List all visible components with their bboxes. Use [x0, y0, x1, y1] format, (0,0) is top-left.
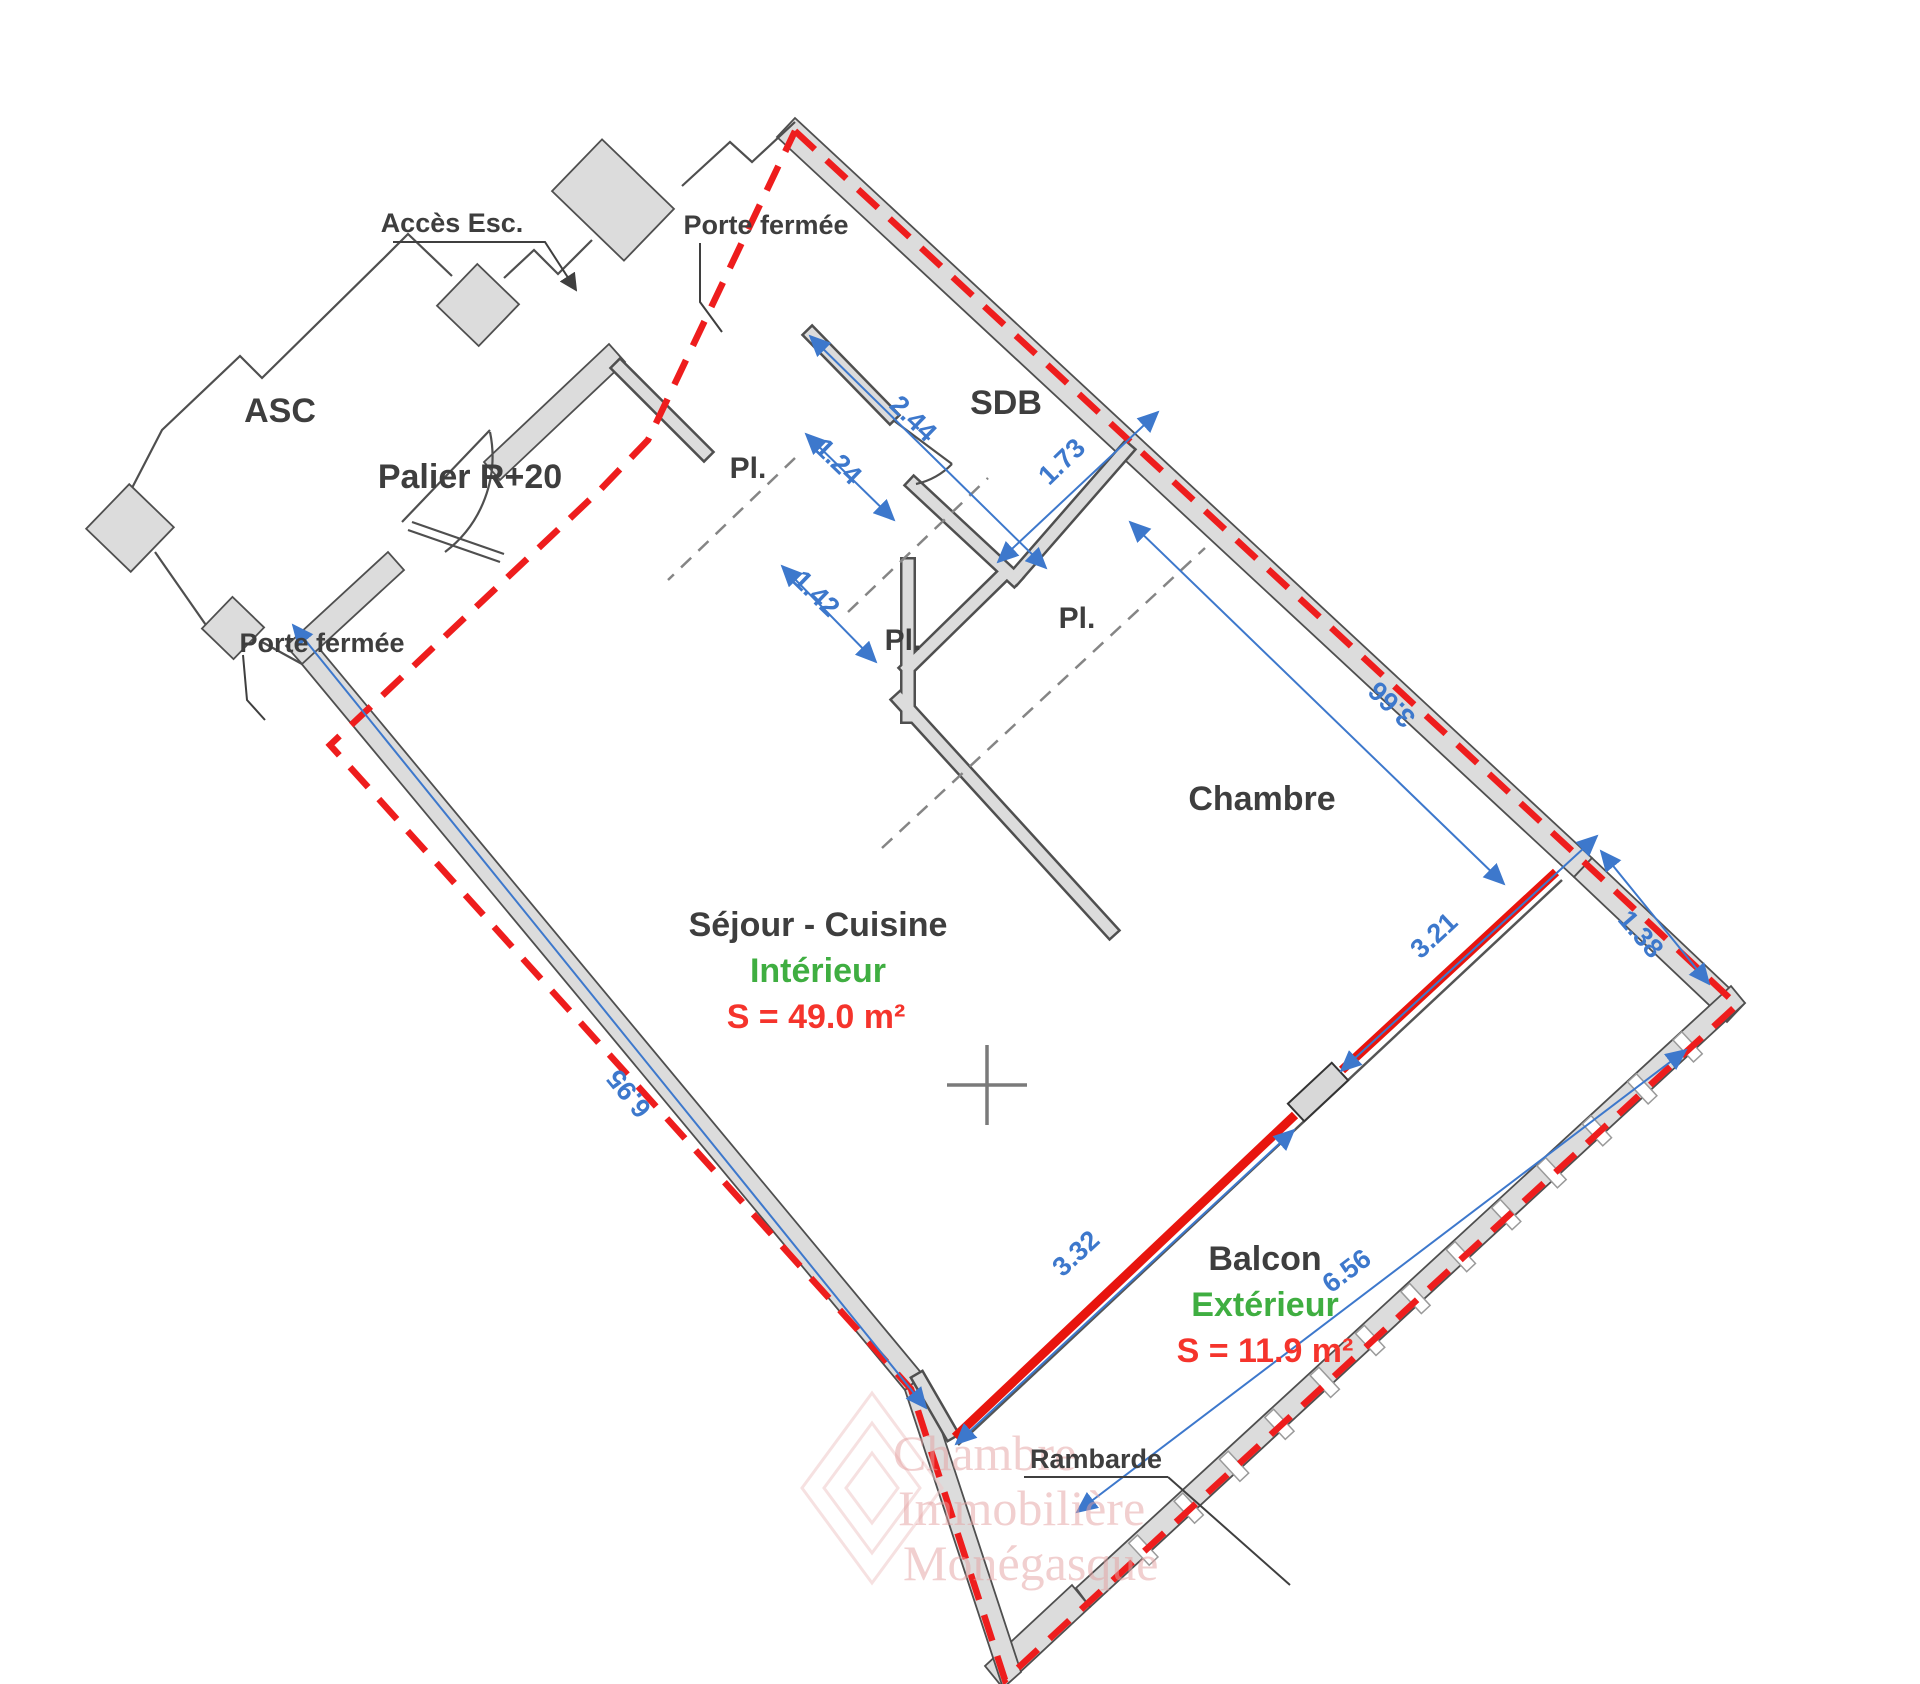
watermark-line3: Monégasque	[903, 1535, 1159, 1591]
dim-hall-width: 1.42	[787, 564, 846, 622]
floor-plan-drawing: 2.44 1.24 1.42 1.73 3.66 6.95 3.32 3.21 …	[0, 0, 1920, 1684]
label-closet-bedroom: Pl.	[1059, 602, 1096, 635]
label-interior-zone: Intérieur	[750, 952, 886, 990]
label-closet-entry: Pl.	[730, 452, 767, 485]
dim-glazing-upper: 3.21	[1404, 907, 1463, 965]
casing-top	[552, 139, 674, 260]
landing-walls	[132, 122, 795, 664]
dim-sdb-side: 2.44	[884, 389, 943, 447]
label-railing: Rambarde	[1030, 1444, 1162, 1474]
balcony-door-panel	[1288, 1063, 1348, 1121]
watermark-line2: Immobilière	[898, 1480, 1145, 1536]
entry-door-leaf2	[408, 530, 500, 562]
room-labels: ASC Palier R+20 Accès Esc. Porte fermée …	[239, 208, 1353, 1474]
label-landing: Palier R+20	[378, 458, 562, 496]
label-elevator: ASC	[244, 392, 316, 430]
label-balcony: Balcon	[1208, 1240, 1321, 1278]
label-closet-middle: Pl.	[885, 624, 922, 657]
label-interior-area: S = 49.0 m²	[727, 998, 906, 1036]
label-exterior-area: S = 11.9 m²	[1177, 1332, 1354, 1370]
label-living-kitchen: Séjour - Cuisine	[689, 906, 948, 944]
floor-plan-page: 2.44 1.24 1.42 1.73 3.66 6.95 3.32 3.21 …	[0, 0, 1920, 1684]
label-bathroom: SDB	[970, 384, 1042, 422]
dim-glazing-lower: 3.32	[1046, 1225, 1105, 1283]
label-exterior-zone: Extérieur	[1191, 1286, 1338, 1324]
label-stairs-access: Accès Esc.	[381, 208, 524, 238]
center-cross-icon	[947, 1045, 1027, 1125]
label-closed-door-left: Porte fermée	[239, 628, 404, 658]
label-closed-door-top: Porte fermée	[683, 210, 848, 240]
dim-closet-width: 1.24	[809, 432, 868, 490]
label-bedroom: Chambre	[1188, 780, 1335, 818]
